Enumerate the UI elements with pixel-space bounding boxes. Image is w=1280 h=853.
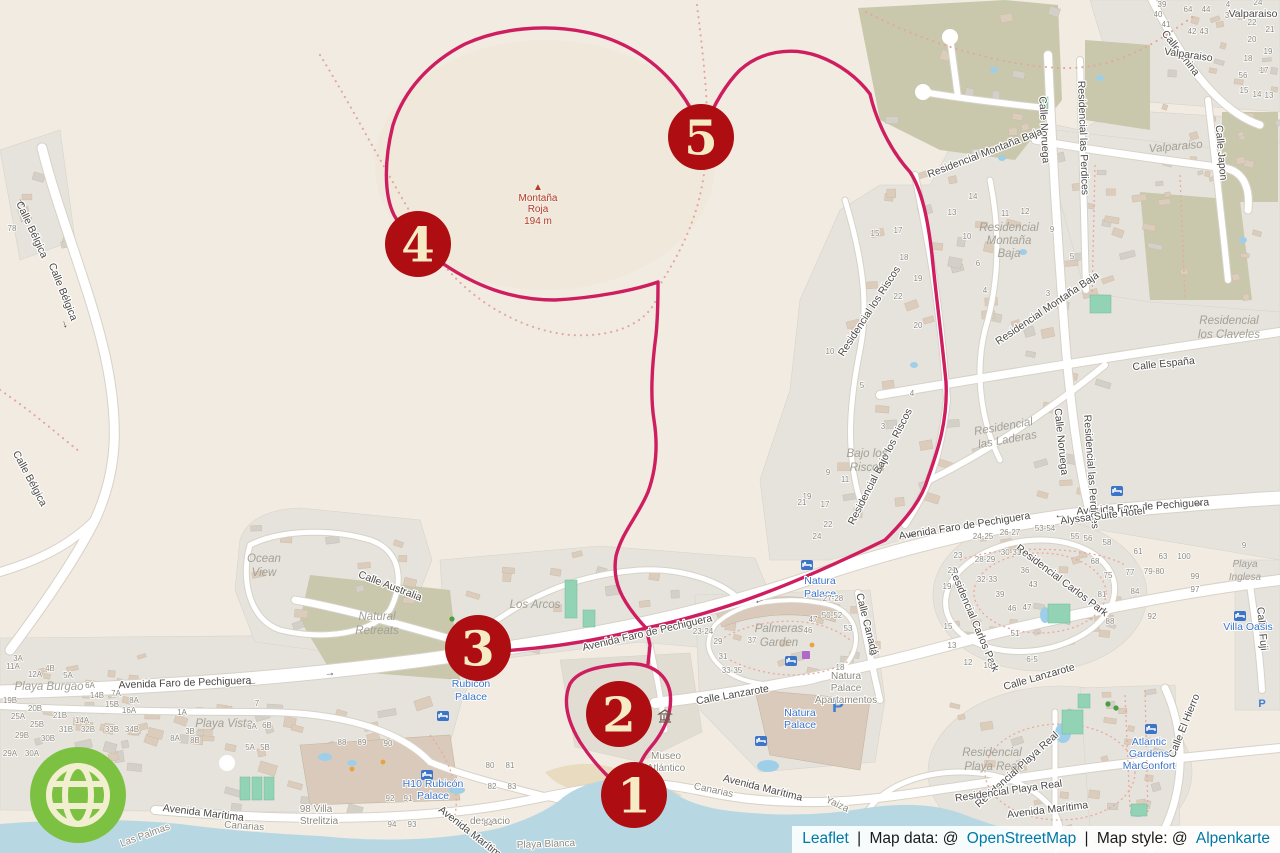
- area-label: Inglesa: [1229, 572, 1262, 583]
- poi-label: Playa Blanca: [517, 838, 576, 851]
- house-number: 21: [948, 566, 957, 575]
- house-number: 8B: [190, 736, 200, 745]
- house-number: 93: [408, 820, 417, 829]
- tree-icon: [1113, 705, 1118, 710]
- road-arrow: →: [1192, 497, 1204, 510]
- house-number: 22: [824, 520, 833, 529]
- house-number: 22: [894, 292, 903, 301]
- poi-label-blue: Natura: [804, 575, 836, 587]
- route-marker-number: 3: [461, 621, 494, 677]
- house-number: 90: [384, 739, 393, 748]
- house-number: 7: [255, 699, 260, 708]
- house-number: 24: [1254, 0, 1263, 7]
- house-number: 5A: [63, 671, 73, 680]
- house-number: 53-54: [1035, 524, 1056, 533]
- road-arrow: →: [324, 667, 336, 680]
- poi-label-blue: Atlantic: [1132, 736, 1166, 748]
- house-number: 84: [484, 819, 493, 828]
- house-number: 4B: [45, 664, 55, 673]
- house-number: 84: [1131, 587, 1140, 596]
- area-label: Playa Real: [964, 761, 1020, 773]
- house-number: 11: [841, 475, 850, 484]
- house-number: 12: [1021, 207, 1030, 216]
- house-number: 79-80: [1144, 567, 1165, 576]
- house-number: 17: [894, 226, 903, 235]
- hotel-icon: [437, 711, 449, 721]
- house-number: 9: [1050, 225, 1055, 234]
- poi-label: 98 Villa: [300, 804, 333, 815]
- hotel-icon: [1234, 611, 1246, 621]
- pool-icon: [757, 760, 779, 772]
- peak-label: Roja: [528, 204, 549, 215]
- house-number: 18: [836, 663, 845, 672]
- house-number: 9: [1242, 541, 1247, 550]
- house-number: 12: [964, 658, 973, 667]
- house-number: 24-25: [973, 532, 994, 541]
- house-number: 29: [714, 637, 723, 646]
- house-number: 16A: [122, 706, 137, 715]
- road-arrow: ←: [1054, 509, 1066, 522]
- area-label: Baja: [997, 248, 1020, 260]
- area-label: Palmeras: [755, 623, 804, 635]
- house-number: 51: [1011, 629, 1020, 638]
- attribution-separator: |: [1085, 830, 1089, 847]
- house-number: 20: [914, 321, 923, 330]
- pool-icon: [1096, 75, 1104, 81]
- route-marker-1[interactable]: 1: [601, 762, 667, 828]
- house-number: 46: [804, 626, 813, 635]
- attribution-separator: |: [857, 830, 861, 847]
- house-number: 4: [910, 389, 915, 398]
- pool-icon: [347, 760, 357, 766]
- house-number: 55: [1071, 532, 1080, 541]
- house-number: 99: [1191, 572, 1200, 581]
- attribution-bar: Leaflet | Map data: @ OpenStreetMap | Ma…: [792, 826, 1280, 853]
- house-number: 44: [1202, 5, 1211, 14]
- house-number: 26-27: [1000, 528, 1021, 537]
- court-icon: [1090, 295, 1111, 313]
- house-number: 25B: [30, 720, 44, 729]
- house-number: 19B: [3, 696, 17, 705]
- house-number: 61: [1134, 547, 1143, 556]
- house-number: 58: [1103, 538, 1112, 547]
- house-number: 3: [1225, 11, 1230, 20]
- house-number: 14A: [75, 716, 90, 725]
- poi-label: Natura: [831, 671, 861, 682]
- poi-label-blue: MarConfort: [1123, 760, 1176, 772]
- house-number: 75: [1104, 571, 1113, 580]
- house-number: 77: [1126, 568, 1135, 577]
- house-number: 39: [996, 590, 1005, 599]
- house-number: 39: [1158, 0, 1167, 9]
- dot-icon: [381, 760, 386, 765]
- house-number: 21: [798, 498, 807, 507]
- shop-icon: [802, 651, 810, 659]
- house-number: 6-5: [1026, 655, 1038, 664]
- house-number: 8A: [170, 734, 180, 743]
- poi-label: Palace: [831, 683, 862, 694]
- house-number: 47: [1023, 603, 1032, 612]
- house-number: 41: [1162, 20, 1171, 29]
- house-number: 6B: [262, 721, 272, 730]
- house-number: 6A: [247, 722, 257, 731]
- house-number: 97: [1191, 585, 1200, 594]
- area-label: Ocean: [247, 553, 281, 565]
- dot-icon: [810, 643, 815, 648]
- house-number: 9: [826, 468, 831, 477]
- area-label: Los Arcos: [510, 599, 561, 611]
- house-number: 81: [1098, 590, 1107, 599]
- poi-label-blue: Gardens: [1129, 748, 1169, 760]
- house-number: 6: [976, 259, 981, 268]
- poi-label: Strelitzia: [300, 816, 339, 827]
- house-number: 5B: [260, 743, 270, 752]
- pool-icon: [910, 362, 918, 368]
- tree-icon: [449, 616, 454, 621]
- house-number: 22: [1248, 18, 1257, 27]
- house-number: 15: [871, 229, 880, 238]
- poi-label-blue: Natura: [784, 707, 816, 719]
- hotel-icon: [801, 560, 813, 570]
- house-number: 4: [983, 286, 988, 295]
- leaflet-link[interactable]: Leaflet: [802, 830, 849, 847]
- house-number: 32-33: [977, 575, 998, 584]
- house-number: 31: [719, 652, 728, 661]
- map-canvas[interactable]: PP ▲MontañaRoja194 mCalle BélgicaCalle B…: [0, 0, 1280, 853]
- house-number: 14: [1253, 90, 1262, 99]
- house-number: 40: [1154, 10, 1163, 19]
- house-number: 5: [860, 381, 865, 390]
- house-number: 15: [1240, 86, 1249, 95]
- house-number: 53: [844, 624, 853, 633]
- route-marker-3[interactable]: 3: [445, 615, 511, 681]
- peak-label: Montaña: [519, 193, 558, 204]
- house-number: 29A: [3, 749, 18, 758]
- house-number: 23-24: [693, 627, 714, 636]
- house-number: 18: [1244, 54, 1253, 63]
- house-number: 14B: [90, 691, 104, 700]
- area-label: Playa Burgao: [14, 681, 84, 693]
- area-label: Playa: [1232, 559, 1257, 570]
- house-number: 47: [809, 615, 818, 624]
- route-marker-number: 5: [684, 110, 717, 166]
- house-number: 13: [948, 208, 957, 217]
- house-number: 91: [404, 794, 413, 803]
- court-icon: [1078, 694, 1090, 708]
- house-number: 56: [1239, 71, 1248, 80]
- area-label: Bajo los: [847, 448, 888, 460]
- house-number: 29B: [15, 731, 29, 740]
- route-marker-5[interactable]: 5: [668, 104, 734, 170]
- area-label: Retreats: [355, 625, 399, 637]
- house-number: 30A: [25, 749, 40, 758]
- house-number: 34B: [125, 725, 139, 734]
- peak-elevation: 194 m: [524, 216, 552, 227]
- house-number: 42: [1188, 27, 1197, 36]
- road-arrow: ←: [246, 676, 257, 688]
- house-number: 31B: [59, 725, 73, 734]
- house-number: 4: [1226, 0, 1231, 9]
- house-number: 17: [1260, 66, 1269, 75]
- house-number: 83: [508, 782, 517, 791]
- house-number: 19: [1264, 47, 1273, 56]
- house-number: 21: [1266, 25, 1275, 34]
- house-number: 88: [338, 738, 347, 747]
- house-number: 5: [1070, 252, 1075, 261]
- hotel-icon: [1111, 486, 1123, 496]
- pool-icon: [990, 67, 998, 73]
- house-number: 94: [388, 820, 397, 829]
- poi-label: Apartamentos: [815, 695, 877, 706]
- house-number: 68: [1091, 557, 1100, 566]
- area-label: Playa Vista: [195, 718, 252, 730]
- route-marker-4[interactable]: 4: [385, 211, 451, 277]
- house-number: 6A: [85, 681, 95, 690]
- house-number: 37: [748, 636, 757, 645]
- area-label: Residencial: [979, 222, 1039, 234]
- tree-icon: [1105, 701, 1110, 706]
- house-number: 21B: [53, 711, 67, 720]
- house-number: 3: [1046, 289, 1051, 298]
- court-icon: [1131, 804, 1147, 816]
- court-icon: [583, 610, 595, 627]
- road-arrow: →: [864, 645, 878, 658]
- svg-text:P: P: [1258, 698, 1265, 710]
- house-number: 17: [821, 500, 830, 509]
- pool-icon: [318, 753, 332, 761]
- house-number: 92: [386, 794, 395, 803]
- house-number: 88: [1106, 617, 1115, 626]
- poi-label-blue: Palace: [417, 790, 449, 802]
- house-number: 30-31: [1001, 548, 1022, 557]
- house-number: 23: [954, 551, 963, 560]
- map-style-label: Map style: @: [1097, 830, 1188, 847]
- pool-icon: [998, 155, 1006, 161]
- house-number: 10: [963, 232, 972, 241]
- map-data-label: Map data: @: [870, 830, 959, 847]
- house-number: 10: [826, 347, 835, 356]
- poi-label-blue: H10 Rubicón: [403, 778, 464, 790]
- court-icon: [264, 777, 274, 800]
- house-number: 3B: [185, 727, 195, 736]
- house-number: 18: [900, 253, 909, 262]
- house-number: 8A: [129, 696, 139, 705]
- house-number: 33B: [105, 725, 119, 734]
- house-number: 50-52: [822, 611, 843, 620]
- house-number: 30B: [41, 734, 55, 743]
- house-number: 64: [1184, 5, 1193, 14]
- house-number: 11A: [6, 662, 20, 671]
- house-number: 12A: [28, 670, 43, 679]
- house-number: 81: [506, 761, 515, 770]
- court-icon: [240, 777, 250, 800]
- house-number: 19: [914, 274, 923, 283]
- house-number: 19: [943, 582, 952, 591]
- court-icon: [565, 580, 577, 618]
- route-marker-number: 1: [617, 768, 650, 824]
- poi-label: Museo: [651, 751, 681, 762]
- house-number: 82: [488, 782, 497, 791]
- peak-icon: ▲: [533, 182, 543, 193]
- house-number: 15B: [105, 700, 119, 709]
- alpenkarte-link[interactable]: Alpenkarte: [1196, 830, 1270, 847]
- house-number: 20: [1248, 35, 1257, 44]
- house-number: 33-35: [722, 666, 743, 675]
- house-number: 36: [1021, 566, 1030, 575]
- house-number: 13: [948, 641, 957, 650]
- area-label: Montaña: [987, 235, 1032, 247]
- hotel-icon: [755, 736, 767, 746]
- route-marker-2[interactable]: 2: [586, 681, 652, 747]
- house-number: 25A: [11, 712, 26, 721]
- hotel-icon: [1145, 724, 1157, 734]
- area-label: Natural: [358, 611, 396, 623]
- house-number: 3: [881, 422, 886, 431]
- house-number: 56: [1084, 534, 1093, 543]
- house-number: 32B: [81, 725, 95, 734]
- house-number: 13: [1265, 91, 1274, 100]
- hotel-icon: [785, 656, 797, 666]
- house-number: 28-29: [975, 555, 996, 564]
- house-number: 10: [984, 661, 993, 670]
- house-number: 11: [1001, 209, 1010, 218]
- house-number: 92: [1148, 612, 1157, 621]
- route-marker-number: 4: [401, 217, 434, 273]
- house-number: 5A: [245, 743, 255, 752]
- house-number: 80: [486, 761, 495, 770]
- openstreetmap-link[interactable]: OpenStreetMap: [967, 830, 1076, 847]
- poi-label-blue: Villa Oasis: [1223, 621, 1272, 633]
- area-label: Riscos: [850, 462, 885, 474]
- house-number: 27-28: [823, 594, 844, 603]
- area-label: los Claveles: [1198, 329, 1260, 341]
- court-icon: [1062, 710, 1083, 734]
- house-number: 7A: [111, 689, 121, 698]
- house-number: 14: [969, 192, 978, 201]
- house-number: 1A: [177, 708, 187, 717]
- poi-label-blue: Palace: [784, 719, 816, 731]
- area-label: Residencial: [962, 747, 1022, 759]
- house-number: 78: [8, 224, 17, 233]
- area-label: Garden: [760, 637, 798, 649]
- area-label: Residencial: [1199, 315, 1259, 327]
- route-marker-number: 2: [602, 687, 635, 743]
- house-number: 43: [1200, 27, 1209, 36]
- house-number: 24: [813, 532, 822, 541]
- dot-icon: [350, 767, 355, 772]
- map-viewport[interactable]: PP ▲MontañaRoja194 mCalle BélgicaCalle B…: [0, 0, 1280, 853]
- globe-logo-icon: [30, 747, 126, 843]
- house-number: 46: [1008, 604, 1017, 613]
- poi-label-blue: Palace: [455, 691, 487, 703]
- house-number: 43: [1029, 580, 1038, 589]
- court-icon: [252, 777, 262, 800]
- house-number: 20B: [28, 704, 42, 713]
- area-label: View: [252, 567, 277, 579]
- parking-icon: P: [1258, 698, 1265, 710]
- house-number: 100: [1177, 552, 1191, 561]
- house-number: 15: [944, 622, 953, 631]
- house-number: 63: [1159, 552, 1168, 561]
- house-number: 89: [358, 738, 367, 747]
- pool-icon: [1239, 237, 1247, 243]
- court-icon: [1048, 604, 1070, 623]
